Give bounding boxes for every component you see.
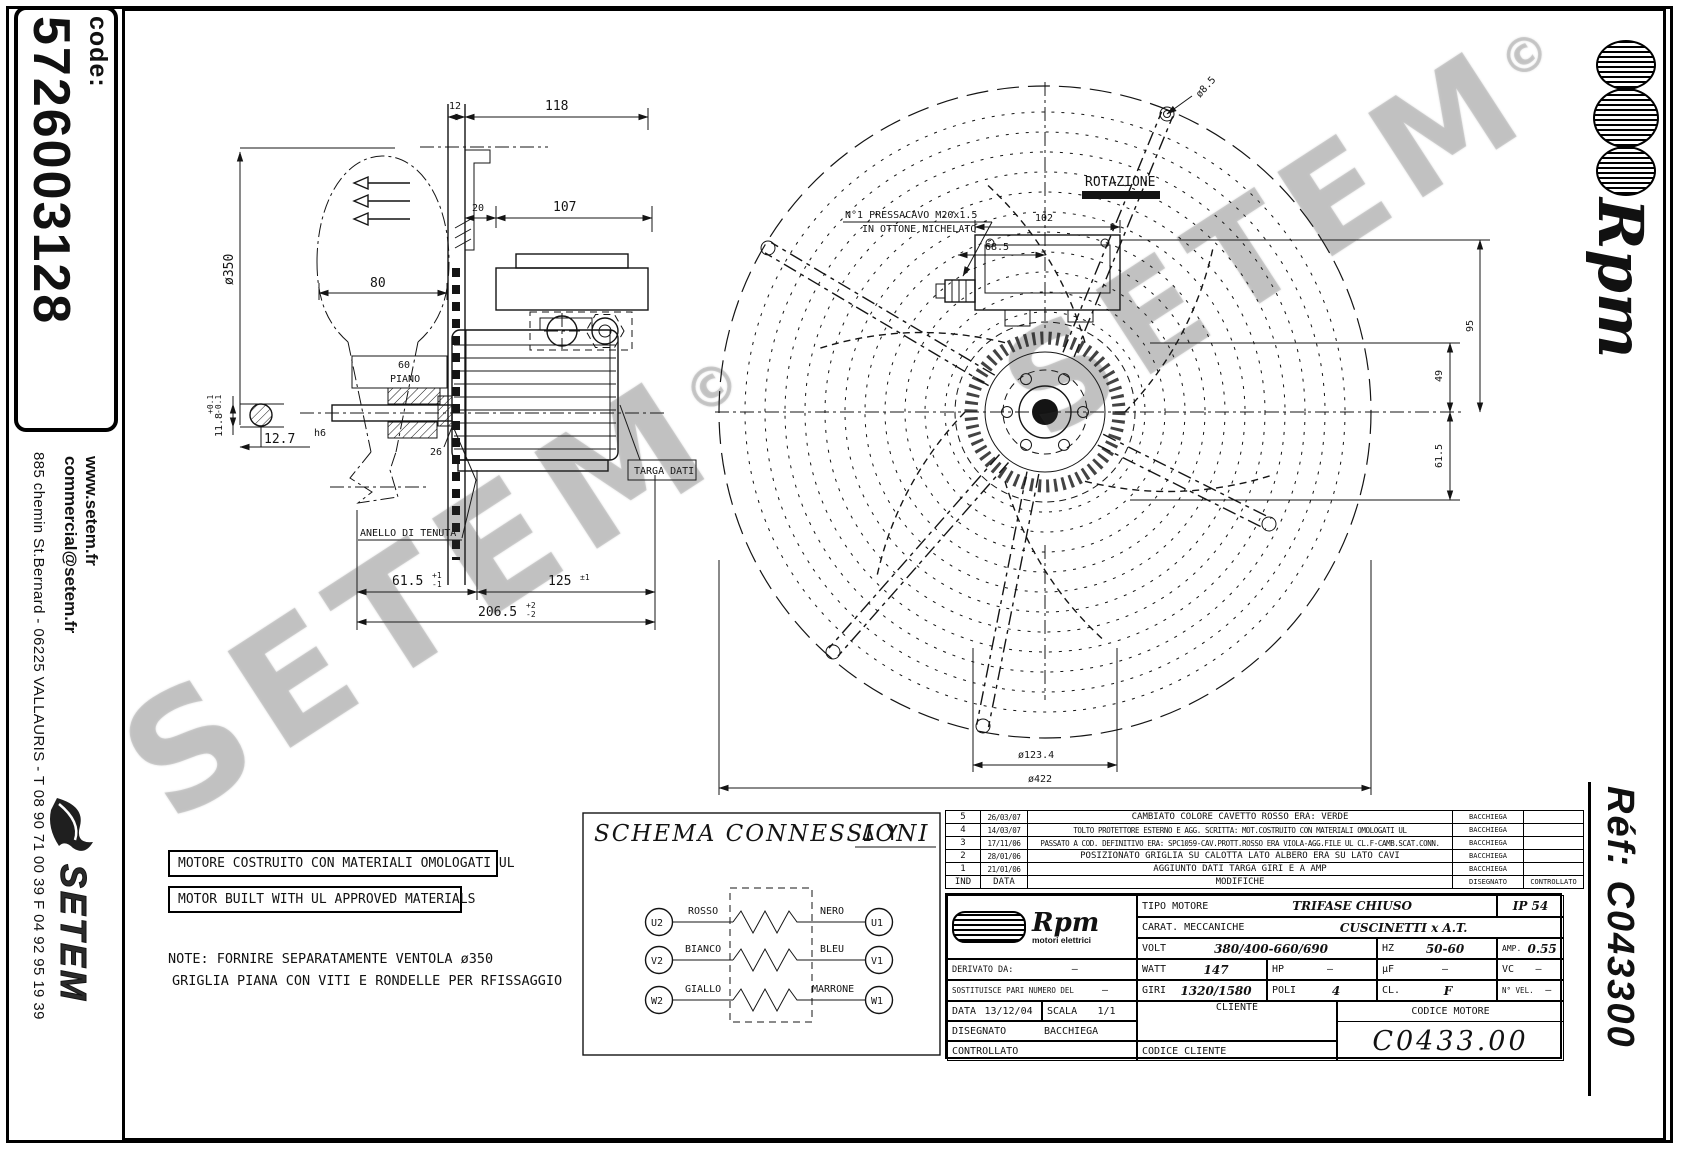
svg-text:-1: -1: [432, 580, 442, 589]
data-cell: DATA 13/12/04: [947, 1001, 1042, 1021]
svg-text:BLEU: BLEU: [820, 944, 844, 955]
amp-cell: AMP. 0.55: [1497, 938, 1564, 959]
code-value: 5726003128: [21, 16, 81, 422]
poli-cell: POLI 4: [1267, 980, 1377, 1001]
guard-spokes: [765, 112, 1271, 727]
volt-cell: VOLT 380/400-660/690: [1137, 938, 1377, 959]
rpm-coil-icon-small: [952, 911, 1026, 943]
carat-cell: CARAT. MECCANICHE CUSCINETTI x A.T.: [1137, 917, 1564, 938]
svg-text:h6: h6: [314, 428, 326, 439]
watt-cell: WATT 147: [1137, 959, 1267, 980]
cooling-fins: [454, 345, 616, 449]
revision-table: 5 26/03/07 CAMBIATO COLORE CAVETTO ROSSO…: [945, 810, 1584, 889]
ip-cell: IP 54: [1497, 895, 1564, 917]
technical-drawing-sheet: { "left_margin": { "code_label": "code:"…: [0, 0, 1683, 1153]
svg-text:ø123.4: ø123.4: [1018, 750, 1054, 761]
svg-text:ANELLO DI TENUTA: ANELLO DI TENUTA: [360, 528, 456, 539]
svg-text:W2: W2: [651, 996, 663, 1007]
scala-cell: SCALA 1/1: [1042, 1001, 1137, 1021]
svg-text:107: 107: [553, 200, 576, 215]
svg-text:IN OTTONE NICHELATO: IN OTTONE NICHELATO: [862, 224, 976, 235]
svg-text:80: 80: [370, 276, 386, 291]
svg-text:49: 49: [1434, 370, 1445, 382]
fan-front-view: ROTAZIONE N°1 PRESSACAVO M20x1.5 IN OTTO…: [715, 75, 1490, 795]
svg-text:11.8: 11.8: [214, 413, 225, 437]
svg-text:118: 118: [545, 99, 568, 114]
svg-text:±1: ±1: [580, 573, 590, 582]
svg-text:ø422: ø422: [1028, 774, 1052, 785]
note-line-1: NOTE: FORNIRE SEPARATAMENTE VENTOLA ø350: [168, 951, 493, 967]
giri-cell: GIRI 1320/1580: [1137, 980, 1267, 1001]
svg-text:+2: +2: [526, 601, 536, 610]
motor-side-view: 12 118 20 107: [206, 99, 696, 630]
svg-text:TARGA DATI: TARGA DATI: [634, 466, 694, 477]
title-block: Rpm motori elettrici TIPO MOTORE TRIFASE…: [945, 893, 1562, 1059]
table-row: 5 26/03/07 CAMBIATO COLORE CAVETTO ROSSO…: [946, 811, 1584, 824]
svg-text:N°1 PRESSACAVO M20x1.5: N°1 PRESSACAVO M20x1.5: [845, 210, 977, 221]
tipo-motore-cell: TIPO MOTORE TRIFASE CHIUSO: [1137, 895, 1497, 917]
hub-center: [1032, 399, 1058, 425]
svg-text:V1: V1: [871, 956, 883, 967]
code-label: code:: [83, 16, 112, 422]
svg-text:-2: -2: [526, 610, 536, 619]
svg-text:20: 20: [472, 203, 484, 214]
svg-text:102: 102: [1035, 213, 1053, 224]
svg-text:U1: U1: [871, 918, 883, 929]
setem-logo-text: SETEM: [52, 864, 94, 1003]
svg-text:206.5: 206.5: [478, 605, 517, 620]
table-row: 4 14/03/07 TOLTO PROTETTORE ESTERNO E AG…: [946, 824, 1584, 837]
svg-text:ROSSO: ROSSO: [688, 906, 718, 917]
svg-text:26: 26: [430, 447, 442, 458]
disegnato-cell: DISEGNATO BACCHIEGA: [947, 1021, 1137, 1041]
note-ul-italian: MOTORE COSTRUITO CON MATERIALI OMOLOGATI…: [168, 850, 498, 877]
svg-text:V2: V2: [651, 956, 663, 967]
controllato-cell: CONTROLLATO: [947, 1041, 1137, 1061]
rotation-arrow-bar: [1082, 191, 1160, 199]
svg-text:95: 95: [1465, 320, 1476, 332]
rpm-brand-sub: motori elettrici: [1032, 936, 1099, 945]
table-row: 1 21/01/06 AGGIUNTO DATI TARGA GIRI E A …: [946, 863, 1584, 876]
codice-motore-label-cell: CODICE MOTORE: [1337, 1001, 1564, 1021]
shaft-section-detail: 11.8 +0.1 -0.1 12.7 h6: [206, 395, 326, 447]
cl-cell: CL. F: [1377, 980, 1497, 1001]
uf-cell: μF —: [1377, 959, 1497, 980]
airflow-arrows: [354, 177, 410, 225]
connection-schema: SCHEMA CONNESSIONI Δ Y U2 ROSSO NERO U1 …: [583, 813, 940, 1055]
svg-text:GIALLO: GIALLO: [685, 984, 721, 995]
hp-cell: HP —: [1267, 959, 1377, 980]
spoke-tips: [761, 107, 1276, 733]
revision-header-row: IND DATA MODIFICHE DISEGNATO CONTROLLATO: [946, 876, 1584, 889]
svg-text:68.5: 68.5: [985, 242, 1009, 253]
svg-text:12.7: 12.7: [264, 432, 295, 447]
note-line-2: GRIGLIA PIANA CON VITI E RONDELLE PER RF…: [172, 973, 562, 989]
svg-text:BIANCO: BIANCO: [685, 944, 721, 955]
vc-cell: VC —: [1497, 959, 1564, 980]
table-row: 3 17/11/06 PASSATO A COD. DEFINITIVO ERA…: [946, 837, 1584, 850]
svg-text:61.5: 61.5: [1434, 444, 1445, 468]
svg-text:ø8.5: ø8.5: [1194, 75, 1218, 100]
codice-motore-value-cell: C0433.00: [1337, 1021, 1564, 1061]
sostituisce-cell: SOSTITUISCE PARI NUMERO DEL –: [947, 980, 1137, 1001]
cliente-cell: CLIENTE: [1137, 1001, 1337, 1041]
svg-text:60: 60: [398, 360, 410, 371]
svg-text:ø350: ø350: [222, 254, 237, 285]
svg-text:ROTAZIONE: ROTAZIONE: [1085, 175, 1155, 190]
svg-text:U2: U2: [651, 918, 663, 929]
svg-text:MARRONE: MARRONE: [812, 984, 854, 995]
svg-text:W1: W1: [871, 996, 883, 1007]
svg-text:PIANO: PIANO: [390, 374, 420, 385]
svg-text:125: 125: [548, 574, 571, 589]
svg-text:Δ Y: Δ Y: [862, 821, 898, 845]
rpm-brand-small: Rpm: [1032, 910, 1099, 936]
derivato-cell: DERIVATO DA: —: [947, 959, 1137, 980]
hz-cell: HZ 50-60: [1377, 938, 1497, 959]
code-box: code: 5726003128: [14, 6, 118, 432]
svg-text:61.5: 61.5: [392, 574, 423, 589]
svg-text:NERO: NERO: [820, 906, 844, 917]
nvel-cell: N° VEL. —: [1497, 980, 1564, 1001]
title-block-logo: Rpm motori elettrici: [947, 895, 1137, 959]
codice-cliente-cell: CODICE CLIENTE: [1137, 1041, 1337, 1061]
table-row: 2 28/01/06 POSIZIONATO GRIGLIA SU CALOTT…: [946, 850, 1584, 863]
svg-text:12: 12: [449, 101, 461, 112]
svg-text:+1: +1: [432, 571, 442, 580]
note-ul-english: MOTOR BUILT WITH UL APPROVED MATERIALS: [168, 886, 462, 913]
swan-icon: [41, 792, 105, 856]
svg-text:-0.1: -0.1: [214, 395, 223, 414]
